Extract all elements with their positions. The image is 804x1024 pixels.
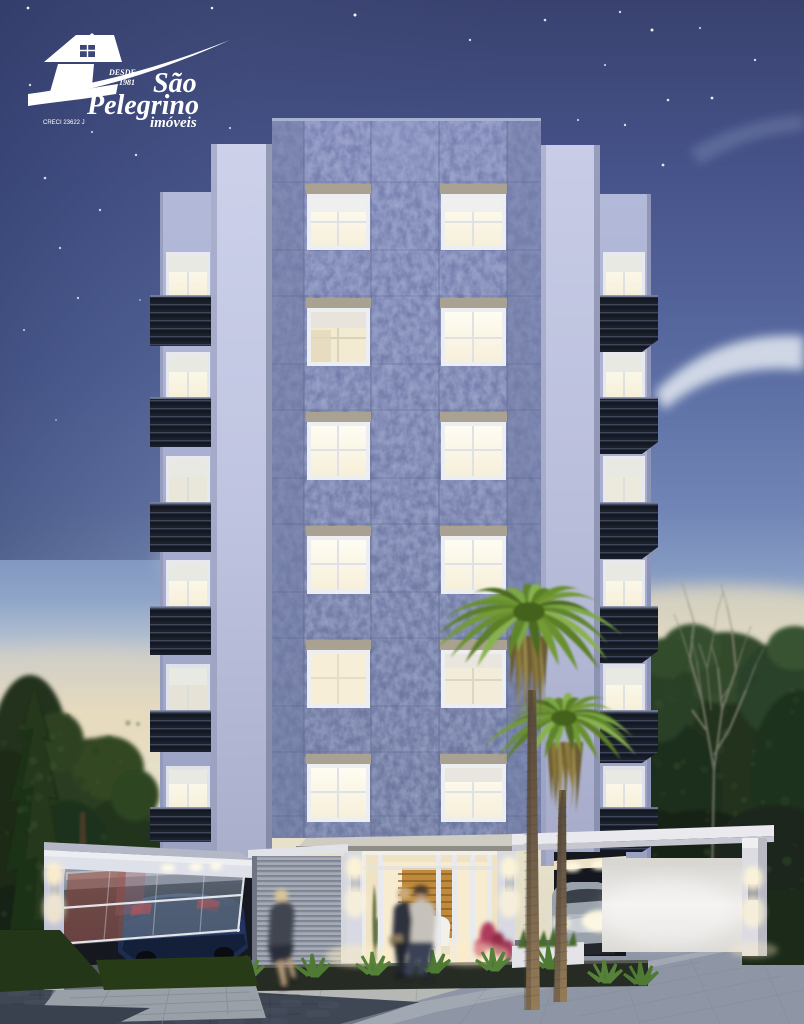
svg-text:1981: 1981: [119, 78, 135, 87]
svg-text:imóveis: imóveis: [150, 115, 197, 131]
svg-text:DESDE: DESDE: [108, 68, 136, 77]
svg-text:CRECI 23622 J: CRECI 23622 J: [43, 120, 85, 126]
